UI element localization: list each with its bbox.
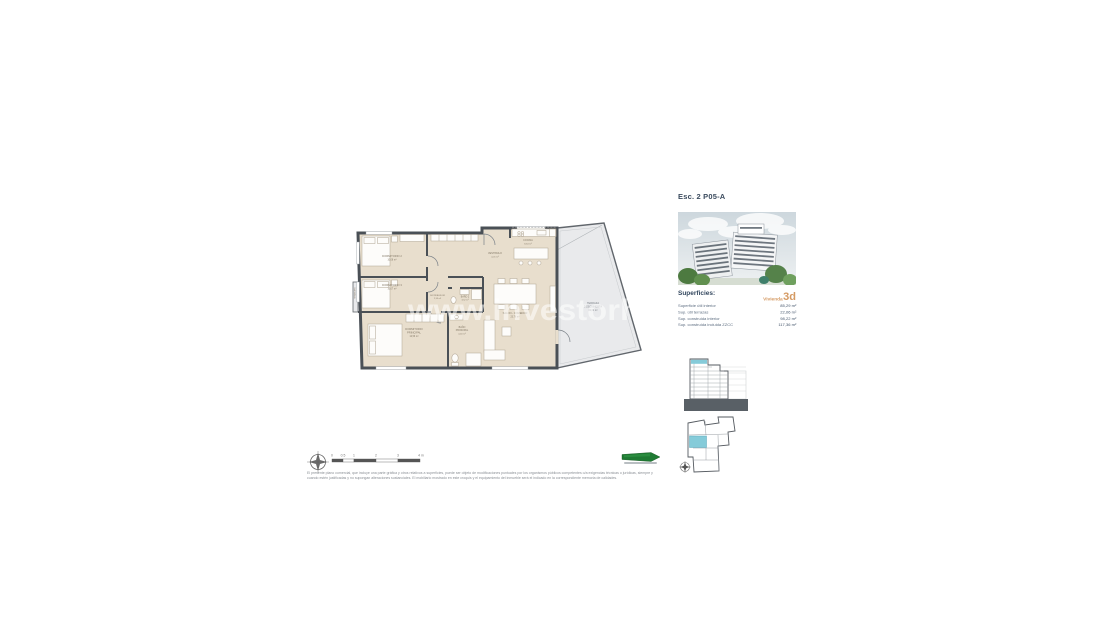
svg-text:COCINA: COCINA (523, 239, 533, 242)
svg-text:12,56 m²: 12,56 m² (409, 335, 418, 338)
svg-text:DORMITORIO 2: DORMITORIO 2 (382, 254, 402, 258)
table-row: Sup. construida incluida ZZCC 117,36 m² (678, 322, 796, 328)
superficies-heading: Superficies: (678, 290, 715, 297)
hall-wardrobe (431, 235, 478, 242)
plan-sheet-page: DORMITORIO 2 10,08 m² DORMITORIO 3 10,07… (0, 0, 1110, 626)
svg-text:0.5: 0.5 (341, 454, 346, 458)
svg-text:4,40 m²: 4,40 m² (458, 332, 466, 335)
developer-logo (621, 450, 661, 466)
floor-key-plan (678, 415, 740, 475)
section-base (684, 399, 748, 411)
svg-text:VESTIBULO: VESTIBULO (488, 252, 502, 255)
disclaimer-text: El presente plano comercial, que incluye… (307, 471, 657, 481)
key-compass-icon (679, 461, 691, 473)
vivienda-3d-label: 3d (783, 291, 796, 303)
svg-text:DORMITORIO 3: DORMITORIO 3 (382, 283, 402, 287)
svg-text:10,07 m²: 10,07 m² (387, 288, 396, 291)
floor-plan: DORMITORIO 2 10,08 m² DORMITORIO 3 10,07… (352, 220, 644, 372)
bed-principal (368, 324, 402, 356)
highlighted-unit (690, 436, 707, 448)
wardrobe-dorm2 (400, 235, 424, 242)
svg-text:1: 1 (353, 454, 355, 458)
compass-icon (306, 449, 330, 473)
svg-text:8,64 m²: 8,64 m² (524, 242, 532, 245)
surface-row-value: 117,36 m² (778, 322, 796, 328)
surface-table: Superficie útil interior 85,29 m² Sup. ú… (678, 303, 796, 329)
surface-row-label: Sup. construida incluida ZZCC (678, 322, 733, 328)
scale-bar: 0 0.5 1 2 3 4 m (330, 452, 430, 468)
svg-text:4,01 m²: 4,01 m² (491, 255, 499, 258)
svg-text:PRINCIPAL: PRINCIPAL (407, 330, 421, 334)
svg-text:PRINCIPAL: PRINCIPAL (456, 329, 469, 332)
highlighted-floor (691, 360, 707, 364)
svg-text:10,08 m²: 10,08 m² (387, 259, 396, 262)
svg-text:DORMITORIO: DORMITORIO (405, 327, 422, 331)
unit-info-panel: Esc. 2 P05-A (678, 192, 796, 337)
svg-text:0: 0 (331, 454, 333, 458)
watermark-text: www.investorh (407, 294, 640, 327)
svg-text:3: 3 (397, 454, 399, 458)
kitchen-counter (512, 229, 556, 237)
svg-text:4 m: 4 m (418, 454, 424, 458)
disclaimer-line-2: cuando estén justificadas y no supongan … (307, 476, 657, 481)
vivienda-label: Vivienda (764, 297, 783, 302)
logo-caption-bar (624, 462, 657, 464)
svg-text:TENDEDERO: TENDEDERO (354, 287, 356, 299)
unit-title: Esc. 2 P05-A (678, 192, 725, 201)
svg-text:2: 2 (375, 454, 377, 458)
building-render-image (678, 212, 796, 285)
building-section-key (684, 355, 748, 413)
